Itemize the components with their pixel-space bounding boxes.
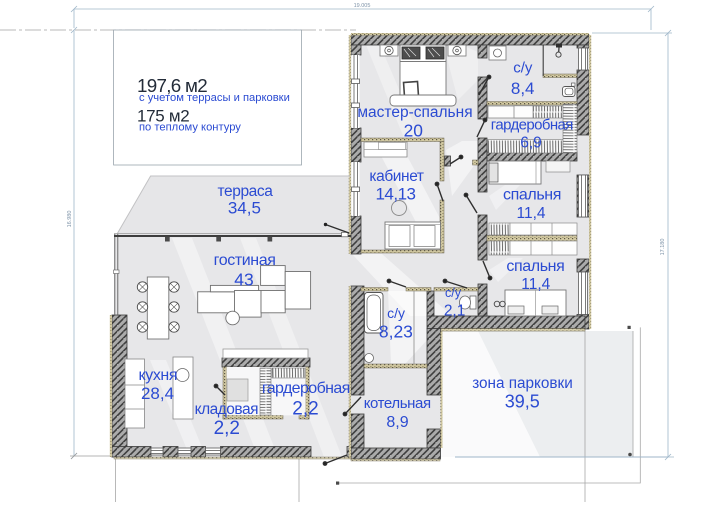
svg-text:34,5: 34,5: [228, 199, 261, 218]
svg-text:8,23: 8,23: [379, 321, 413, 341]
svg-text:8,9: 8,9: [386, 414, 408, 431]
svg-text:2,1: 2,1: [444, 303, 466, 320]
svg-text:19.005: 19.005: [354, 3, 371, 9]
svg-text:кладовая: кладовая: [195, 401, 258, 418]
svg-text:спальня: спальня: [506, 258, 564, 275]
svg-text:2,2: 2,2: [292, 399, 318, 420]
svg-text:2,2: 2,2: [214, 418, 240, 439]
svg-text:20: 20: [404, 120, 423, 140]
svg-text:14,13: 14,13: [375, 185, 415, 204]
svg-text:котельная: котельная: [364, 395, 431, 412]
svg-text:17.180: 17.180: [660, 239, 666, 256]
svg-text:16.980: 16.980: [67, 211, 73, 228]
svg-text:43: 43: [234, 270, 253, 290]
svg-text:зона парковки: зона парковки: [472, 375, 573, 392]
svg-text:6,9: 6,9: [520, 135, 542, 152]
svg-text:11,4: 11,4: [521, 276, 550, 293]
svg-text:с/у: с/у: [513, 60, 533, 77]
svg-text:гардеробная: гардеробная: [491, 117, 573, 134]
svg-text:терраса: терраса: [218, 183, 274, 200]
svg-text:с/у: с/у: [445, 286, 462, 300]
svg-text:гардеробная: гардеробная: [262, 380, 350, 397]
svg-text:с учетом террасы и парковки: с учетом террасы и парковки: [139, 92, 290, 104]
svg-text:кухня: кухня: [138, 367, 177, 384]
svg-text:39,5: 39,5: [505, 392, 540, 412]
svg-text:8,4: 8,4: [511, 79, 535, 98]
svg-text:28,4: 28,4: [141, 384, 174, 403]
svg-text:гостиная: гостиная: [214, 252, 276, 269]
svg-text:с/у: с/у: [387, 305, 405, 321]
svg-text:11,4: 11,4: [516, 205, 545, 222]
svg-text:кабинет: кабинет: [369, 168, 424, 185]
svg-text:мастер-спальня: мастер-спальня: [357, 104, 472, 121]
svg-text:по теплому контуру: по теплому контуру: [139, 122, 241, 134]
svg-text:спальня: спальня: [503, 187, 561, 204]
